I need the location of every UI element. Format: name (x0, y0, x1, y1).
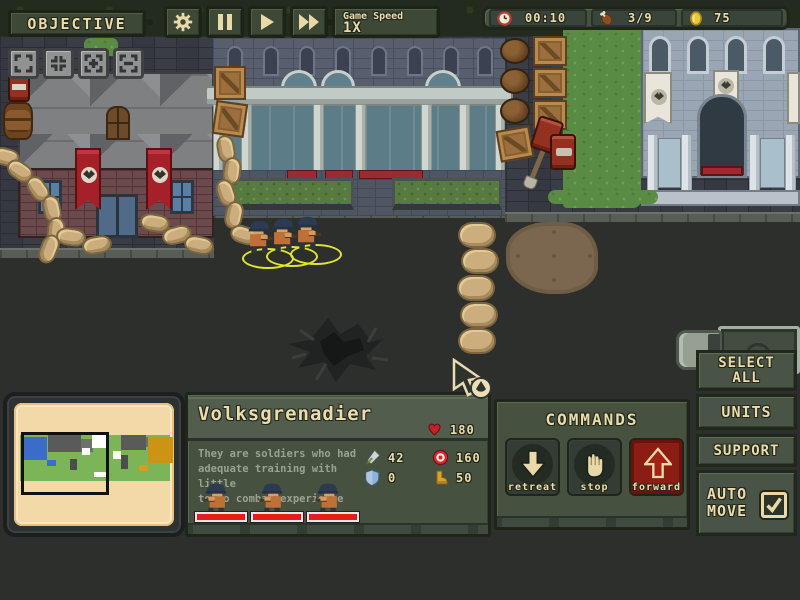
fast-forward-icon (298, 13, 320, 31)
rations-readout: 3/9 (591, 9, 677, 27)
crate (495, 125, 534, 162)
retreat-arrow-icon (520, 449, 546, 479)
pause-icon (218, 14, 223, 30)
door (96, 194, 138, 238)
stop-hand-icon (582, 448, 608, 480)
column (421, 104, 432, 174)
time-value: 00:10 (525, 11, 566, 25)
expand-icon (14, 54, 33, 73)
auto-move-line2: MOVE (707, 503, 747, 520)
auto-move-toggle[interactable]: AUTO MOVE (696, 470, 797, 536)
unit-description-line: They are soldiers who had (198, 447, 376, 462)
sandbag (457, 275, 495, 301)
column (681, 134, 692, 192)
settings-button[interactable] (164, 6, 202, 38)
zoom-in-icon (84, 54, 103, 73)
fast-forward-button[interactable] (290, 6, 328, 38)
play-icon (259, 13, 275, 31)
column (647, 134, 658, 192)
minimap-paper (14, 403, 174, 526)
crate (533, 68, 567, 98)
minimap-viewport[interactable] (21, 432, 109, 495)
unit-cost: 50 (456, 471, 472, 485)
arched-window (477, 46, 493, 76)
unit-hp: 180 (450, 423, 475, 437)
soldier-unit[interactable] (270, 216, 297, 251)
unit-attack: 42 (388, 451, 404, 465)
forward-button[interactable]: forward (629, 438, 684, 496)
retreat-label: retreat (507, 482, 558, 493)
unit-info-panel: Volksgrenadier 180 They are soldiers who… (185, 392, 491, 537)
panel-track-trim (188, 523, 488, 534)
timer-readout: 00:10 (489, 9, 587, 27)
commands-title: COMMANDS (497, 410, 687, 429)
zoom-out-button[interactable] (113, 48, 144, 79)
squad-portrait[interactable] (258, 481, 286, 514)
grass-tuft (548, 190, 658, 204)
dirt-patch (506, 222, 598, 294)
unit-health-bar (307, 512, 359, 522)
minimap-panel[interactable] (3, 392, 185, 537)
pause-icon (227, 14, 232, 30)
auto-move-line1: AUTO (707, 486, 747, 503)
drumstick-icon (599, 10, 615, 26)
unit-health-bar (195, 512, 247, 522)
fullscreen-button[interactable] (8, 48, 39, 79)
panel-track-trim (497, 516, 687, 527)
coin-icon (689, 11, 703, 26)
gold-readout: 75 (681, 9, 783, 27)
game-speed-value: 1X (343, 20, 429, 36)
shrink-icon (49, 54, 68, 73)
column (355, 104, 366, 174)
rations-value: 3/9 (628, 11, 653, 25)
red-barrel (550, 134, 576, 170)
dormer-window (106, 106, 130, 140)
hedge-planter (228, 178, 354, 210)
soldier-unit[interactable] (294, 214, 321, 249)
wood-barrel (3, 102, 33, 140)
auto-move-checkbox[interactable] (761, 492, 787, 518)
eagle-emblem-icon (151, 166, 169, 184)
select-all-line1: SELECT (718, 356, 775, 371)
units-button[interactable]: UNITS (696, 394, 797, 430)
checkmark-icon (764, 495, 784, 515)
select-all-line2: ALL (732, 371, 760, 386)
sandbag (461, 248, 499, 274)
select-all-button[interactable]: SELECT ALL (696, 350, 797, 391)
stop-label: stop (569, 482, 620, 493)
crate (533, 36, 567, 66)
forward-arrow-icon (644, 447, 672, 479)
game-screen: OBJECTIVE Game Speed 1X 00:10 (0, 0, 800, 600)
heart-icon (426, 421, 443, 437)
arched-window (407, 46, 423, 76)
red-mat (701, 166, 743, 176)
retreat-button[interactable]: retreat (505, 438, 560, 496)
arched-window (649, 36, 671, 74)
sword-icon (364, 449, 381, 466)
game-speed-panel[interactable]: Game Speed 1X (332, 6, 440, 38)
base-step (641, 190, 800, 206)
squad-portrait[interactable] (202, 481, 230, 514)
column (313, 104, 324, 174)
right-building (641, 28, 800, 206)
pause-button[interactable] (206, 6, 244, 38)
support-button[interactable]: SUPPORT (696, 434, 797, 467)
unit-title-bar: Volksgrenadier 180 (188, 397, 488, 441)
arched-window (371, 46, 387, 76)
clock-icon (497, 11, 512, 26)
soldier-unit[interactable] (246, 218, 273, 253)
sandbag (458, 222, 496, 248)
window (170, 180, 194, 214)
zoom-out-icon (119, 54, 138, 73)
boot-icon (432, 469, 449, 486)
gold-value: 75 (714, 11, 730, 25)
arched-window (687, 36, 709, 74)
barrel (500, 38, 530, 64)
crate (214, 66, 246, 100)
hedge-planter (392, 178, 502, 210)
arched-window (763, 36, 785, 74)
unit-name: Volksgrenadier (198, 403, 372, 425)
shrink-view-button[interactable] (43, 48, 74, 79)
column (749, 134, 760, 192)
objective-button[interactable]: OBJECTIVE (8, 10, 146, 37)
white-banner (644, 72, 672, 124)
grass-patch (563, 30, 641, 208)
curb-right (505, 212, 800, 222)
units-label: UNITS (721, 403, 771, 421)
barrel (500, 98, 530, 124)
sandbag (458, 328, 496, 354)
objective-label: OBJECTIVE (27, 15, 126, 33)
play-button[interactable] (248, 6, 286, 38)
shell-crater (280, 300, 400, 395)
camera-controls (8, 48, 144, 79)
target-icon (432, 449, 449, 466)
column (785, 134, 796, 192)
crate (212, 100, 248, 138)
emblem-icon (650, 88, 668, 106)
arched-window (725, 36, 747, 74)
gear-icon (172, 11, 194, 33)
mouse-cursor (450, 358, 496, 404)
status-bar: 00:10 3/9 75 (482, 6, 790, 30)
column (459, 104, 470, 174)
support-label: SUPPORT (713, 443, 779, 459)
shield-icon (364, 469, 381, 486)
squad-portrait[interactable] (314, 481, 342, 514)
glass (658, 138, 681, 188)
barrel (500, 68, 530, 94)
arched-window (263, 46, 279, 76)
white-banner (787, 72, 800, 124)
selected-squad[interactable] (238, 214, 348, 272)
emblem-icon (717, 77, 735, 95)
glass (760, 138, 785, 188)
zoom-in-button[interactable] (78, 48, 109, 79)
sandbag (460, 302, 498, 328)
eagle-emblem-icon (80, 166, 98, 184)
commands-panel: COMMANDS retreat stop forward (494, 399, 690, 530)
unit-armor: 0 (388, 471, 396, 485)
forward-label: forward (631, 482, 682, 493)
awning (205, 86, 513, 106)
unit-health-bar (251, 512, 303, 522)
unit-range: 160 (456, 451, 481, 465)
stop-button[interactable]: stop (567, 438, 622, 496)
